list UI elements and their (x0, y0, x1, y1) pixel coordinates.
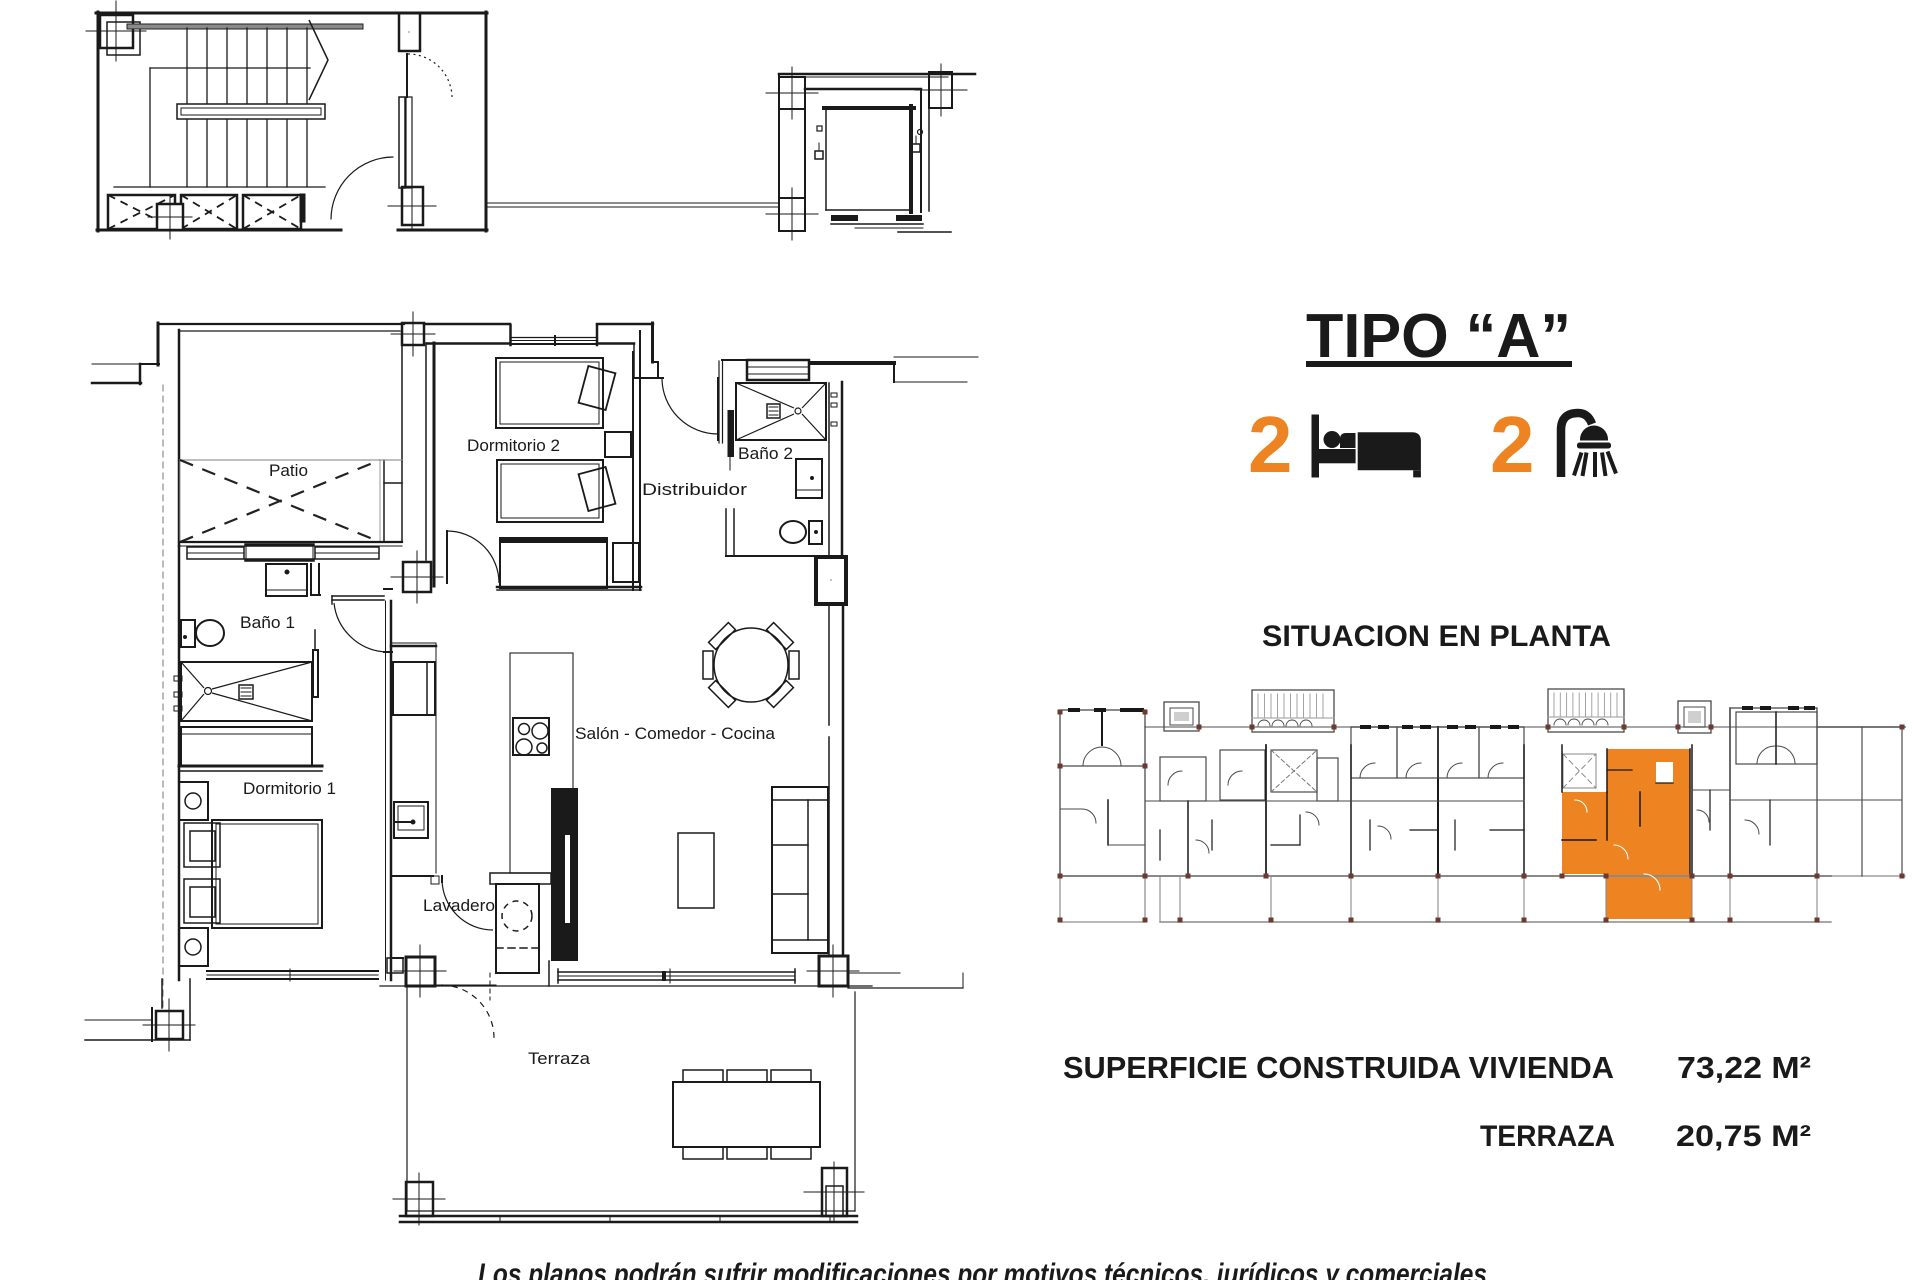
svg-text:TIPO “A”: TIPO “A” (1306, 302, 1571, 371)
svg-text:Baño 1: Baño 1 (240, 613, 295, 632)
svg-text:Dormitorio 2: Dormitorio 2 (467, 436, 560, 455)
svg-text:SITUACION EN PLANTA: SITUACION EN PLANTA (1262, 620, 1611, 653)
svg-text:73,22 M²: 73,22 M² (1677, 1050, 1811, 1085)
svg-text:Patio: Patio (269, 461, 308, 480)
svg-text:Baño 2: Baño 2 (738, 444, 793, 463)
svg-text:20,75 M²: 20,75 M² (1676, 1120, 1811, 1153)
svg-text:Salón - Comedor - Cocina: Salón - Comedor - Cocina (575, 724, 776, 743)
svg-text:Terraza: Terraza (528, 1049, 591, 1068)
svg-text:Distribuidor: Distribuidor (642, 480, 747, 499)
svg-text:Los planos podrán sufrir modif: Los planos podrán sufrir modificaciones … (478, 1258, 1487, 1280)
svg-text:Dormitorio 1: Dormitorio 1 (243, 779, 336, 798)
svg-text:TERRAZA: TERRAZA (1480, 1120, 1615, 1153)
svg-text:2: 2 (1490, 400, 1535, 489)
svg-text:2: 2 (1248, 400, 1293, 489)
svg-text:Lavadero: Lavadero (423, 896, 495, 915)
svg-text:SUPERFICIE CONSTRUIDA VIVIENDA: SUPERFICIE CONSTRUIDA VIVIENDA (1063, 1050, 1614, 1085)
